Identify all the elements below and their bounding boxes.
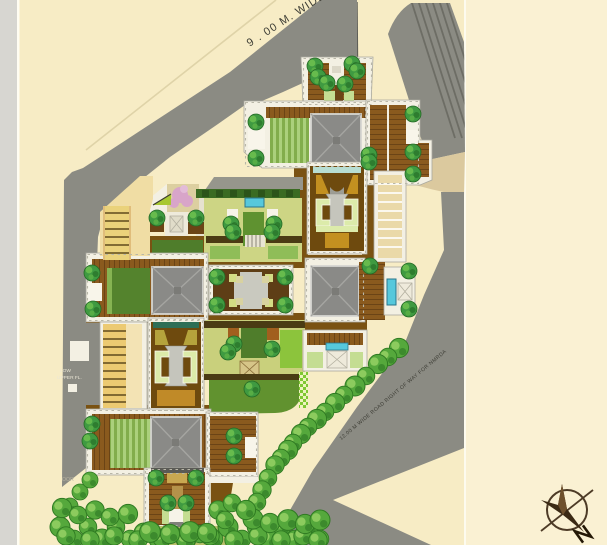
svg-text:OOR: OOR bbox=[62, 477, 74, 483]
svg-text:LOW: LOW bbox=[60, 368, 71, 374]
svg-text:UPPER FL.: UPPER FL. bbox=[57, 375, 82, 381]
